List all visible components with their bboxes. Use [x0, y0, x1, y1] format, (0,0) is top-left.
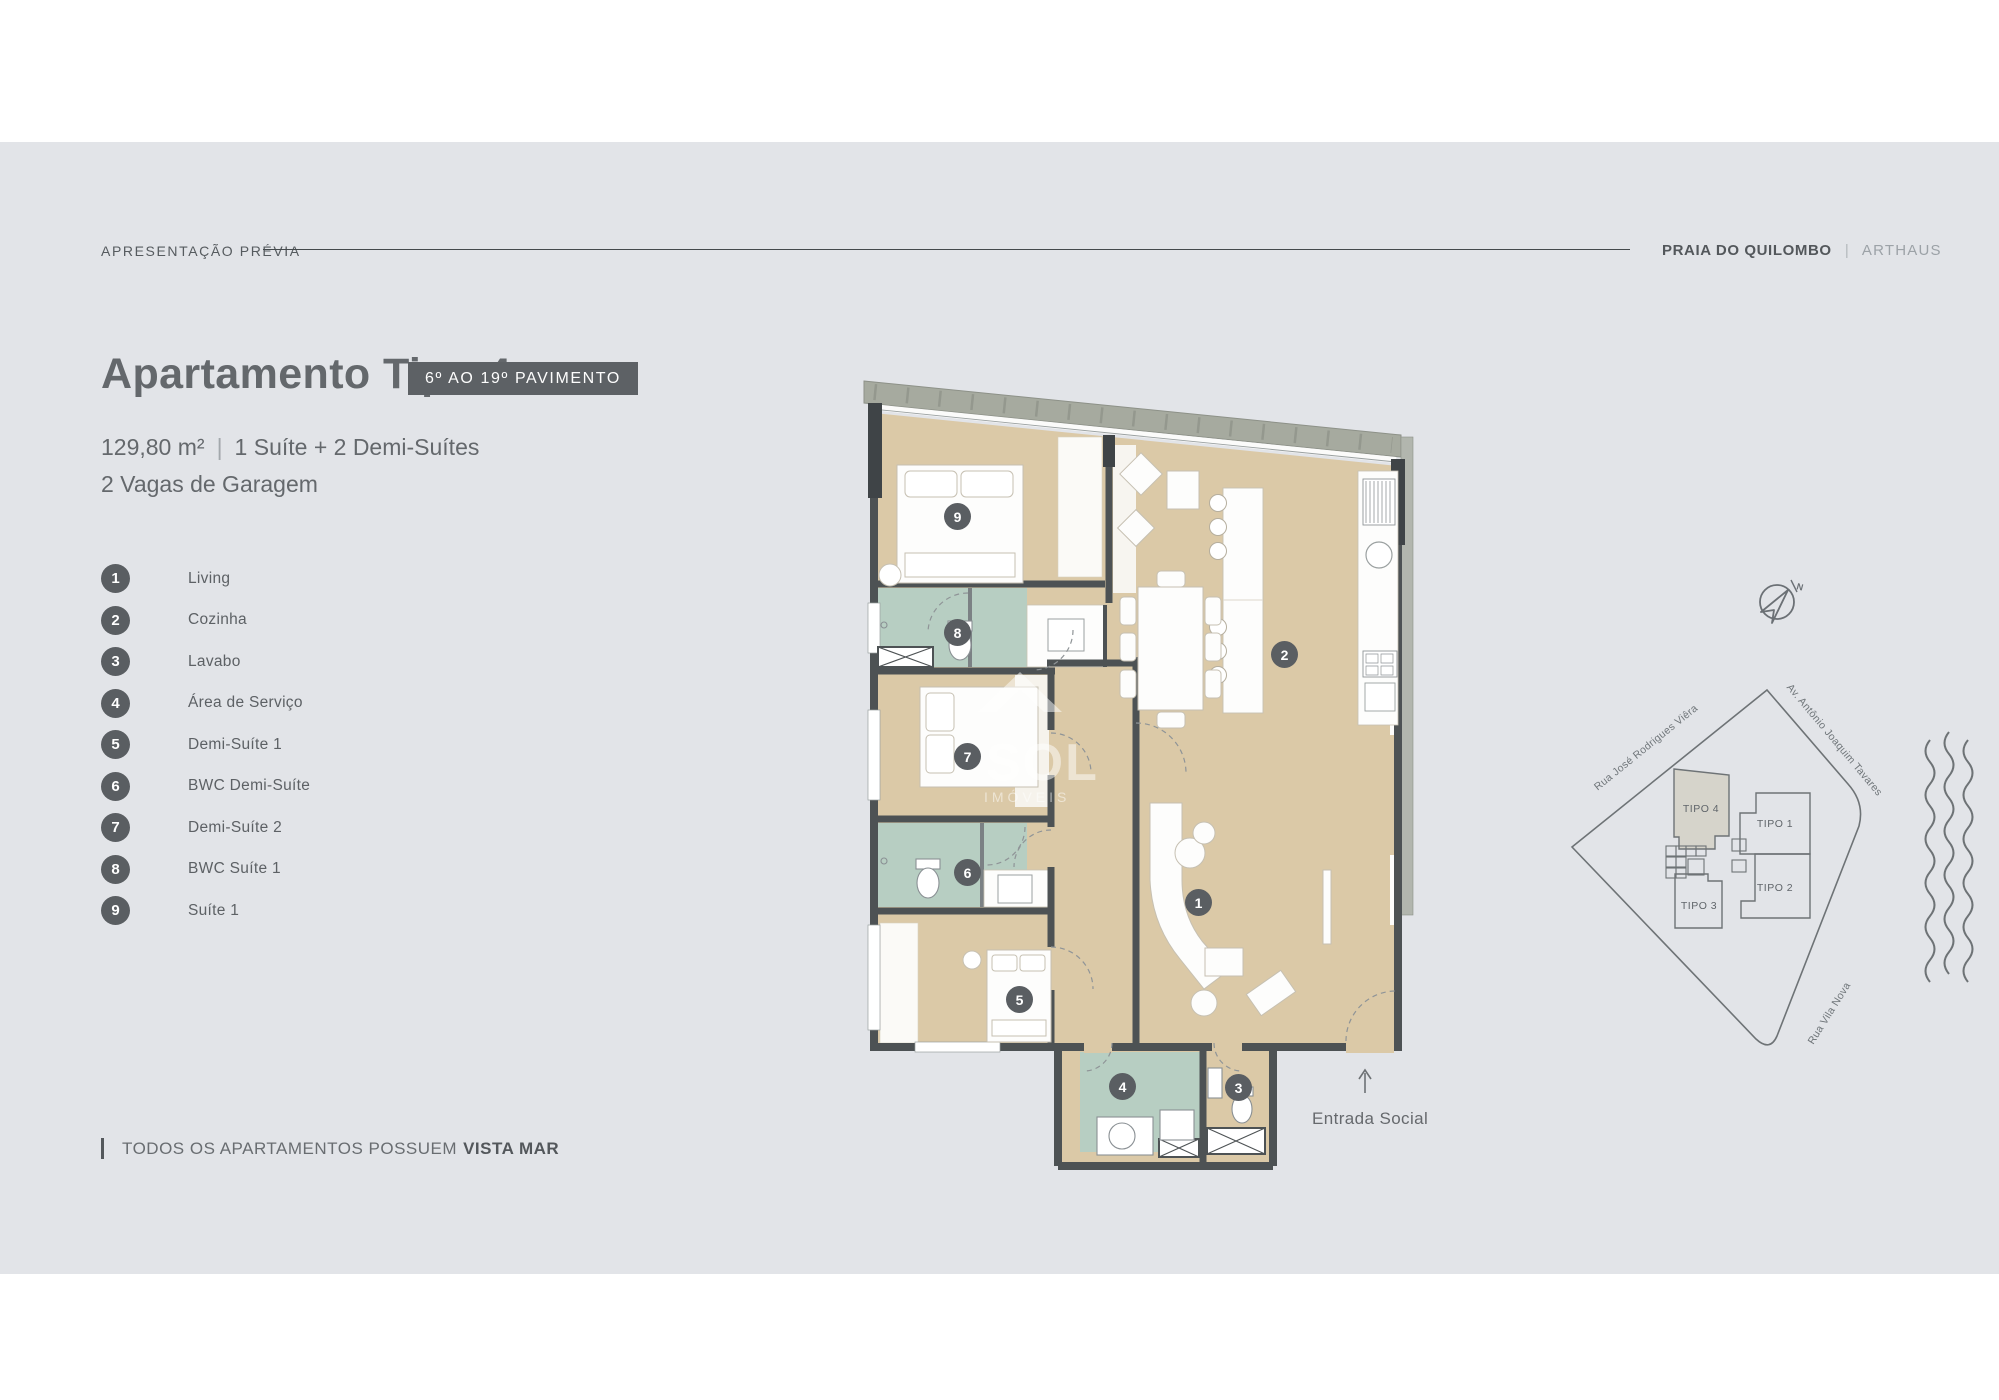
header-brand-block: PRAIA DO QUILOMBO | ARTHAUS [1662, 242, 1942, 259]
building-label-tipo1: TIPO 1 [1757, 818, 1793, 830]
footnote-bar [101, 1138, 104, 1159]
floor-plan: SOL IMÓVEIS Entrada Social 9 8 7 6 5 2 1… [860, 375, 1480, 1185]
kitchen-fixtures [1358, 471, 1398, 725]
legend-label: Demi-Suíte 2 [188, 819, 282, 837]
sink-suite1 [1048, 619, 1084, 651]
unit-parking: 2 Vagas de Garagem [101, 471, 318, 497]
entrance-label: Entrada Social [1312, 1109, 1428, 1128]
closet-suite1 [1058, 437, 1102, 577]
building-label-tipo2: TIPO 2 [1757, 882, 1793, 894]
watermark-text2: IMÓVEIS [984, 789, 1070, 805]
floor-range-badge: 6º AO 19º PAVIMENTO [408, 362, 638, 395]
legend-item: 7Demi-Suíte 2 [101, 813, 310, 842]
legend-item: 5Demi-Suíte 1 [101, 730, 310, 759]
specs-line1: 129,80 m²|1 Suíte + 2 Demi-Suítes [101, 429, 479, 466]
legend-label: Área de Serviço [188, 694, 303, 712]
bathroom-demi-divider [980, 823, 984, 907]
legend-label: Lavabo [188, 653, 241, 671]
specs-pipe: | [217, 434, 223, 460]
lot-boundary [1572, 690, 1861, 1045]
compass-north-label: N [1795, 581, 1804, 592]
brand-separator: | [1845, 242, 1849, 259]
entrance-annotation: Entrada Social [1312, 1070, 1428, 1128]
footnote-highlight: VISTA MAR [463, 1139, 559, 1159]
compass-icon: N [1760, 580, 1804, 623]
legend-item: 1Living [101, 564, 310, 593]
project-name: PRAIA DO QUILOMBO [1662, 242, 1832, 259]
street-label-northeast: Av. Antônio Joaquim Tavares [1784, 682, 1885, 799]
plan-marker-servico: 4 [1109, 1073, 1136, 1100]
legend-number-badge: 1 [101, 564, 130, 593]
legend-label: Suíte 1 [188, 902, 239, 920]
legend-label: Cozinha [188, 611, 247, 629]
legend-label: Demi-Suíte 1 [188, 736, 282, 754]
sink-demi [998, 875, 1032, 903]
site-map-drawing: N Rua José Rodrigues Viêra Av. Antônio J… [1560, 560, 1999, 1100]
unit-area: 129,80 m² [101, 434, 205, 460]
header-divider-line [263, 249, 1630, 250]
street-label-south: Rua Vila Nova [1806, 980, 1854, 1046]
building-label-tipo3: TIPO 3 [1681, 900, 1717, 912]
watermark-text1: SOL [986, 734, 1099, 792]
plan-marker-living: 1 [1185, 889, 1212, 916]
specs-line2: 2 Vagas de Garagem [101, 466, 479, 503]
plan-marker-suite1: 9 [944, 503, 971, 530]
floor-plan-drawing: SOL IMÓVEIS Entrada Social [860, 375, 1480, 1185]
legend-number-badge: 3 [101, 647, 130, 676]
unit-program: 1 Suíte + 2 Demi-Suítes [235, 434, 480, 460]
unit-specs: 129,80 m²|1 Suíte + 2 Demi-Suítes 2 Vaga… [101, 429, 479, 503]
plan-marker-lavabo: 3 [1225, 1074, 1252, 1101]
legend-label: Living [188, 570, 230, 588]
legend-number-badge: 5 [101, 730, 130, 759]
plan-marker-demi-suite1: 5 [1006, 986, 1033, 1013]
legend-label: BWC Suíte 1 [188, 860, 281, 878]
eyebrow-label: APRESENTAÇÃO PRÉVIA [101, 243, 301, 259]
room-legend: 1Living 2Cozinha 3Lavabo 4Área de Serviç… [101, 564, 310, 925]
closet-demi1 [880, 923, 918, 1043]
brand-name: ARTHAUS [1862, 242, 1942, 259]
plan-marker-bwc-suite1: 8 [944, 619, 971, 646]
pillar-mid [1103, 435, 1115, 467]
legend-number-badge: 7 [101, 813, 130, 842]
legend-item: 3Lavabo [101, 647, 310, 676]
footnote-text: TODOS OS APARTAMENTOS POSSUEM [122, 1139, 457, 1159]
sea-waves-icon [1926, 732, 1973, 982]
legend-number-badge: 6 [101, 772, 130, 801]
pillar-topleft [868, 403, 882, 498]
legend-item: 4Área de Serviço [101, 689, 310, 718]
legend-label: BWC Demi-Suíte [188, 777, 310, 795]
legend-item: 6BWC Demi-Suíte [101, 772, 310, 801]
brochure-page: APRESENTAÇÃO PRÉVIA PRAIA DO QUILOMBO | … [0, 0, 1999, 1400]
legend-item: 9Suíte 1 [101, 896, 310, 925]
plan-marker-demi-suite2: 7 [954, 743, 981, 770]
legend-item: 2Cozinha [101, 606, 310, 635]
plan-marker-cozinha: 2 [1271, 641, 1298, 668]
legend-number-badge: 8 [101, 855, 130, 884]
legend-number-badge: 9 [101, 896, 130, 925]
footnote: TODOS OS APARTAMENTOS POSSUEM VISTA MAR [101, 1138, 559, 1159]
site-map: N Rua José Rodrigues Viêra Av. Antônio J… [1560, 560, 1999, 1100]
building-label-tipo4: TIPO 4 [1683, 803, 1719, 815]
plan-marker-bwc-demi: 6 [954, 859, 981, 886]
legend-number-badge: 4 [101, 689, 130, 718]
legend-number-badge: 2 [101, 606, 130, 635]
legend-item: 8BWC Suíte 1 [101, 855, 310, 884]
